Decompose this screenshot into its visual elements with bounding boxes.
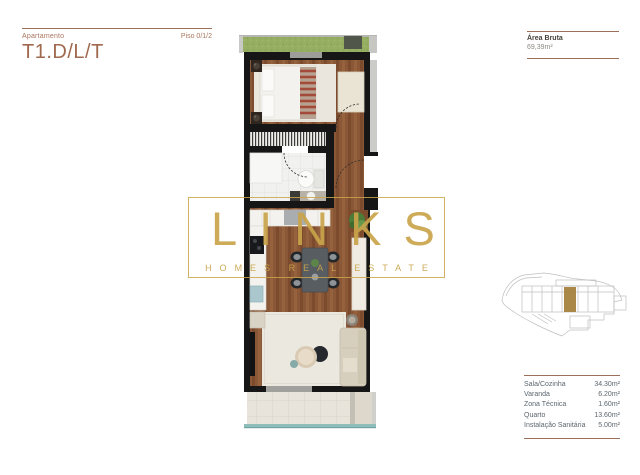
brochure-page: Apartamento T1.D/L/T Piso 0/1/2 Área Bru… [0,0,640,475]
room-label: Zona Técnica [524,401,566,408]
table-row: Zona Técnica 1.60m² [524,400,620,410]
toilet [298,171,314,188]
room-area: 34.30m² [594,381,620,388]
page-title: T1.D/L/T [22,41,212,64]
room-area: 13.60m² [594,412,620,419]
shower [250,153,282,183]
cooktop [250,236,264,254]
room-label: Varanda [524,391,550,398]
room-area: 5.00m² [598,422,620,429]
room-label: Quarto [524,412,545,419]
apartment-floor-plan [236,30,380,432]
gross-area-value: 69,39m² [527,44,619,51]
terrace-door [266,386,312,392]
sofa [340,328,366,386]
room-label: Instalação Sanitária [524,422,585,429]
highlighted-unit [564,287,576,312]
room-area: 6.20m² [598,391,620,398]
hallway-floor [334,124,364,210]
gross-area-label: Área Bruta [527,35,619,42]
areas-table: Sala/Cozinha 34.30m² Varanda 6.20m² Zona… [524,375,620,439]
tall-cabinet [352,238,366,310]
room-label: Sala/Cozinha [524,381,566,388]
closet-strip [250,132,326,146]
apartment-header: Apartamento T1.D/L/T Piso 0/1/2 [22,28,212,64]
stove [284,210,306,225]
site-location-plan [492,256,637,346]
table-row: Varanda 6.20m² [524,389,620,399]
terrace [244,392,376,428]
sink [307,192,316,201]
technical-zone-box [344,36,362,49]
garden-strip [239,35,377,53]
tv [250,332,255,376]
gross-area-block: Área Bruta 69,39m² [527,31,619,59]
living-room [250,312,366,386]
room-area: 1.60m² [598,401,620,408]
floor-label: Piso 0/1/2 [181,33,212,40]
dining-table [302,248,328,292]
table-row: Instalação Sanitária 5.00m² [524,421,620,431]
entrance-opening [364,156,378,188]
bedroom-window [290,52,322,58]
table-row: Sala/Cozinha 34.30m² [524,379,620,389]
table-row: Quarto 13.60m² [524,410,620,420]
